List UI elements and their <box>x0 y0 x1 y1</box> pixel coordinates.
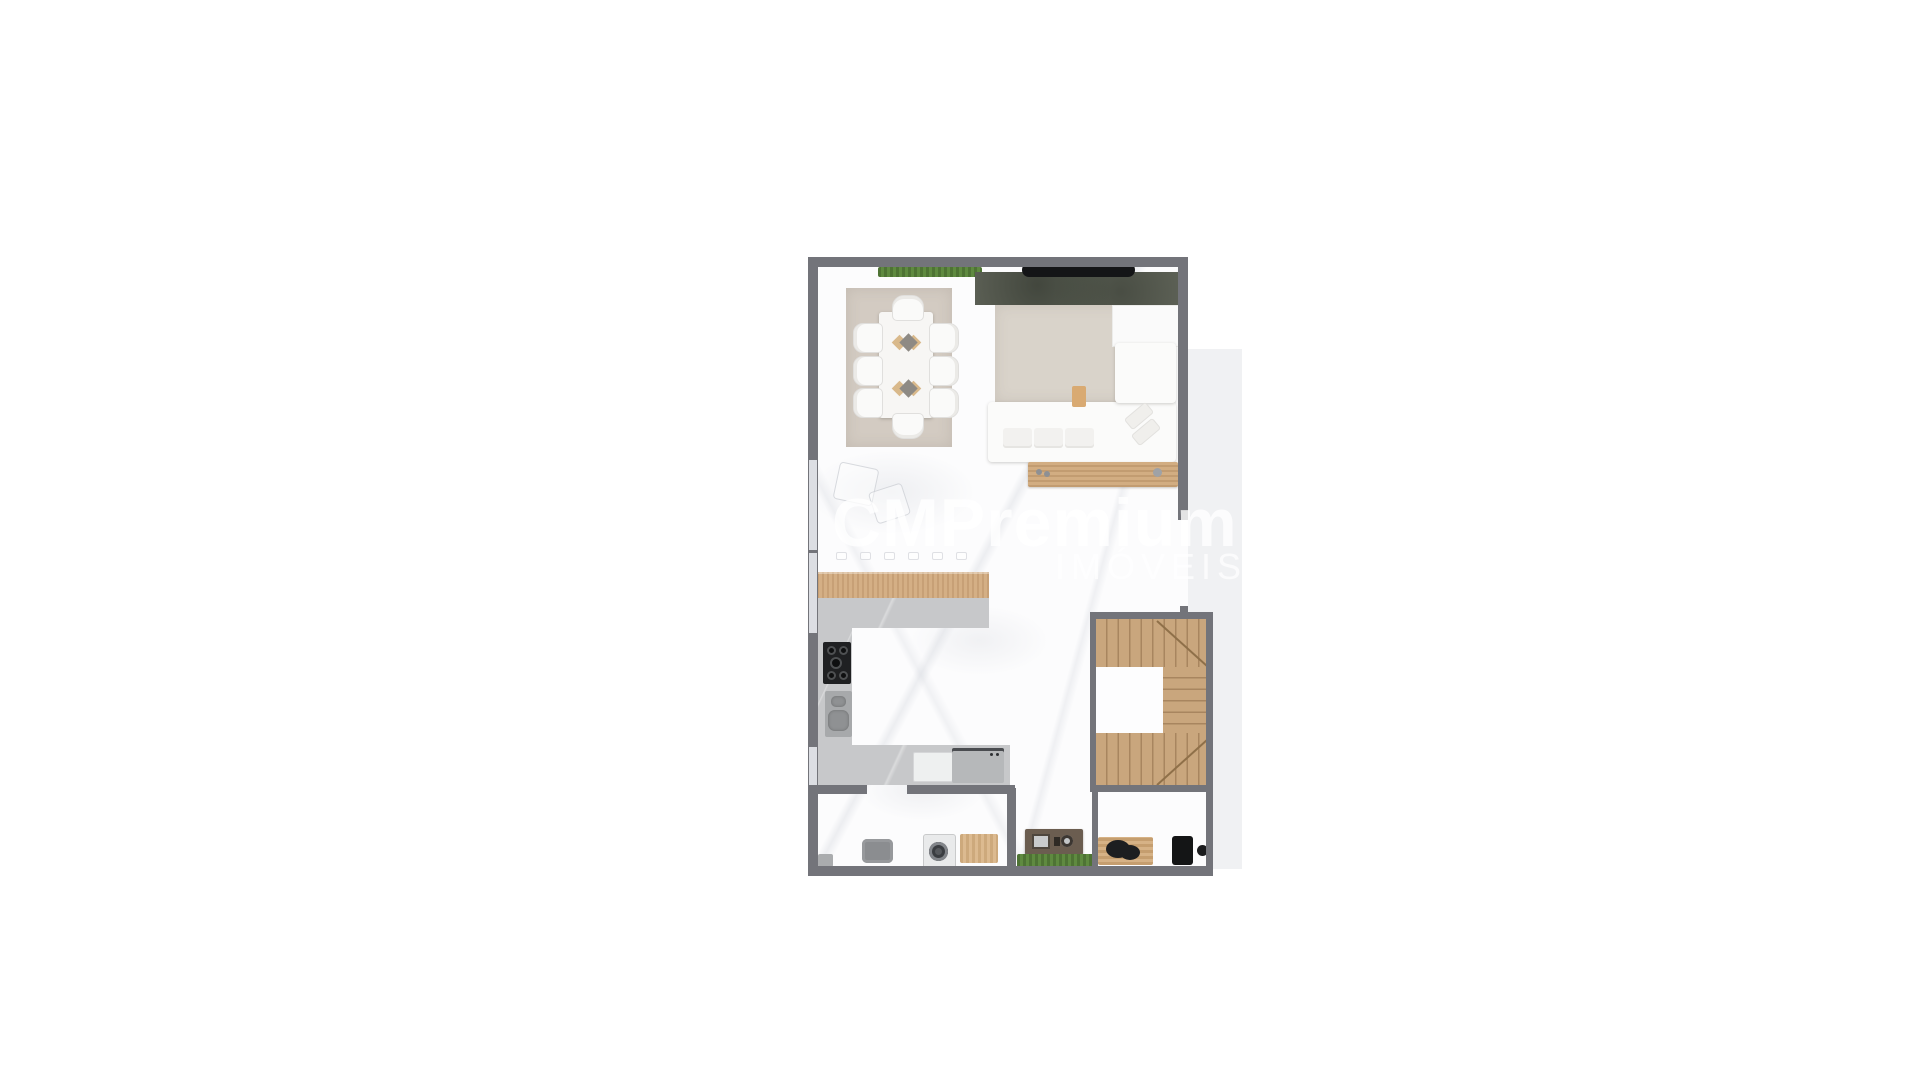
dining-chair-left-1 <box>853 323 883 353</box>
console-decor-2 <box>1044 471 1050 477</box>
grill-cabinet <box>1025 829 1083 855</box>
sideboard <box>1112 305 1185 347</box>
wall-internal-a <box>808 785 867 794</box>
stairs-landing-void <box>1096 667 1161 733</box>
dining-chair-left-2 <box>853 356 883 386</box>
wood-bar-counter <box>817 572 989 598</box>
stairs-right-flight <box>1163 667 1206 733</box>
dining-chair-right-2 <box>929 356 959 386</box>
table-decor-2 <box>894 377 920 401</box>
stairs-top-flight <box>1096 619 1206 667</box>
cooktop <box>823 642 851 684</box>
wall-right-lower <box>1206 792 1213 876</box>
laundry-tank <box>862 839 893 863</box>
wall-stairs-top <box>1090 612 1213 619</box>
wood-deck-mat <box>960 834 998 863</box>
dining-chair-foot <box>892 413 924 439</box>
sofa-cushion-2 <box>1034 428 1063 448</box>
dining-chair-right-3 <box>929 388 959 418</box>
wall-laundry-divider <box>1007 788 1016 876</box>
table-decor-1 <box>894 331 920 355</box>
sofa-cushion-1 <box>1003 428 1032 448</box>
counter-top-run <box>817 598 989 628</box>
dishwasher <box>913 752 953 782</box>
window-left-1 <box>809 460 817 550</box>
dining-table <box>879 312 933 418</box>
wall-top <box>808 257 1188 267</box>
wall-right-upper <box>1178 257 1188 520</box>
steel-range <box>952 748 1004 783</box>
washing-machine <box>923 834 956 870</box>
stairs-bottom-flight <box>1096 733 1206 785</box>
wood-side-table <box>1072 386 1086 407</box>
wall-internal-b <box>907 785 1015 794</box>
page-canvas: { "watermark": { "brand": "CMPremium", "… <box>0 0 1920 1080</box>
wall-terrace-divider <box>1092 792 1098 876</box>
bbq-wood-table <box>1098 837 1153 865</box>
console-decor-1 <box>1036 469 1042 475</box>
dining-chair-right-1 <box>929 323 959 353</box>
watermark-subtitle: IMÓVEIS <box>1055 549 1247 585</box>
mini-fridge <box>1172 836 1193 865</box>
window-left-3 <box>809 747 817 785</box>
wall-bottom <box>808 866 1213 876</box>
kitchen-sink <box>825 691 852 737</box>
dining-chair-left-3 <box>853 388 883 418</box>
wall-stairs-bottom <box>1090 785 1213 792</box>
dining-chair-head <box>892 295 924 321</box>
wall-stairs-left <box>1090 612 1096 792</box>
sofa-chaise <box>1115 343 1176 403</box>
planter-hedge-top <box>878 267 982 277</box>
wall-stairs-right <box>1206 612 1213 792</box>
window-left-2 <box>809 553 817 633</box>
console-decor-plant <box>1153 468 1162 477</box>
sofa-cushion-3 <box>1065 428 1094 448</box>
